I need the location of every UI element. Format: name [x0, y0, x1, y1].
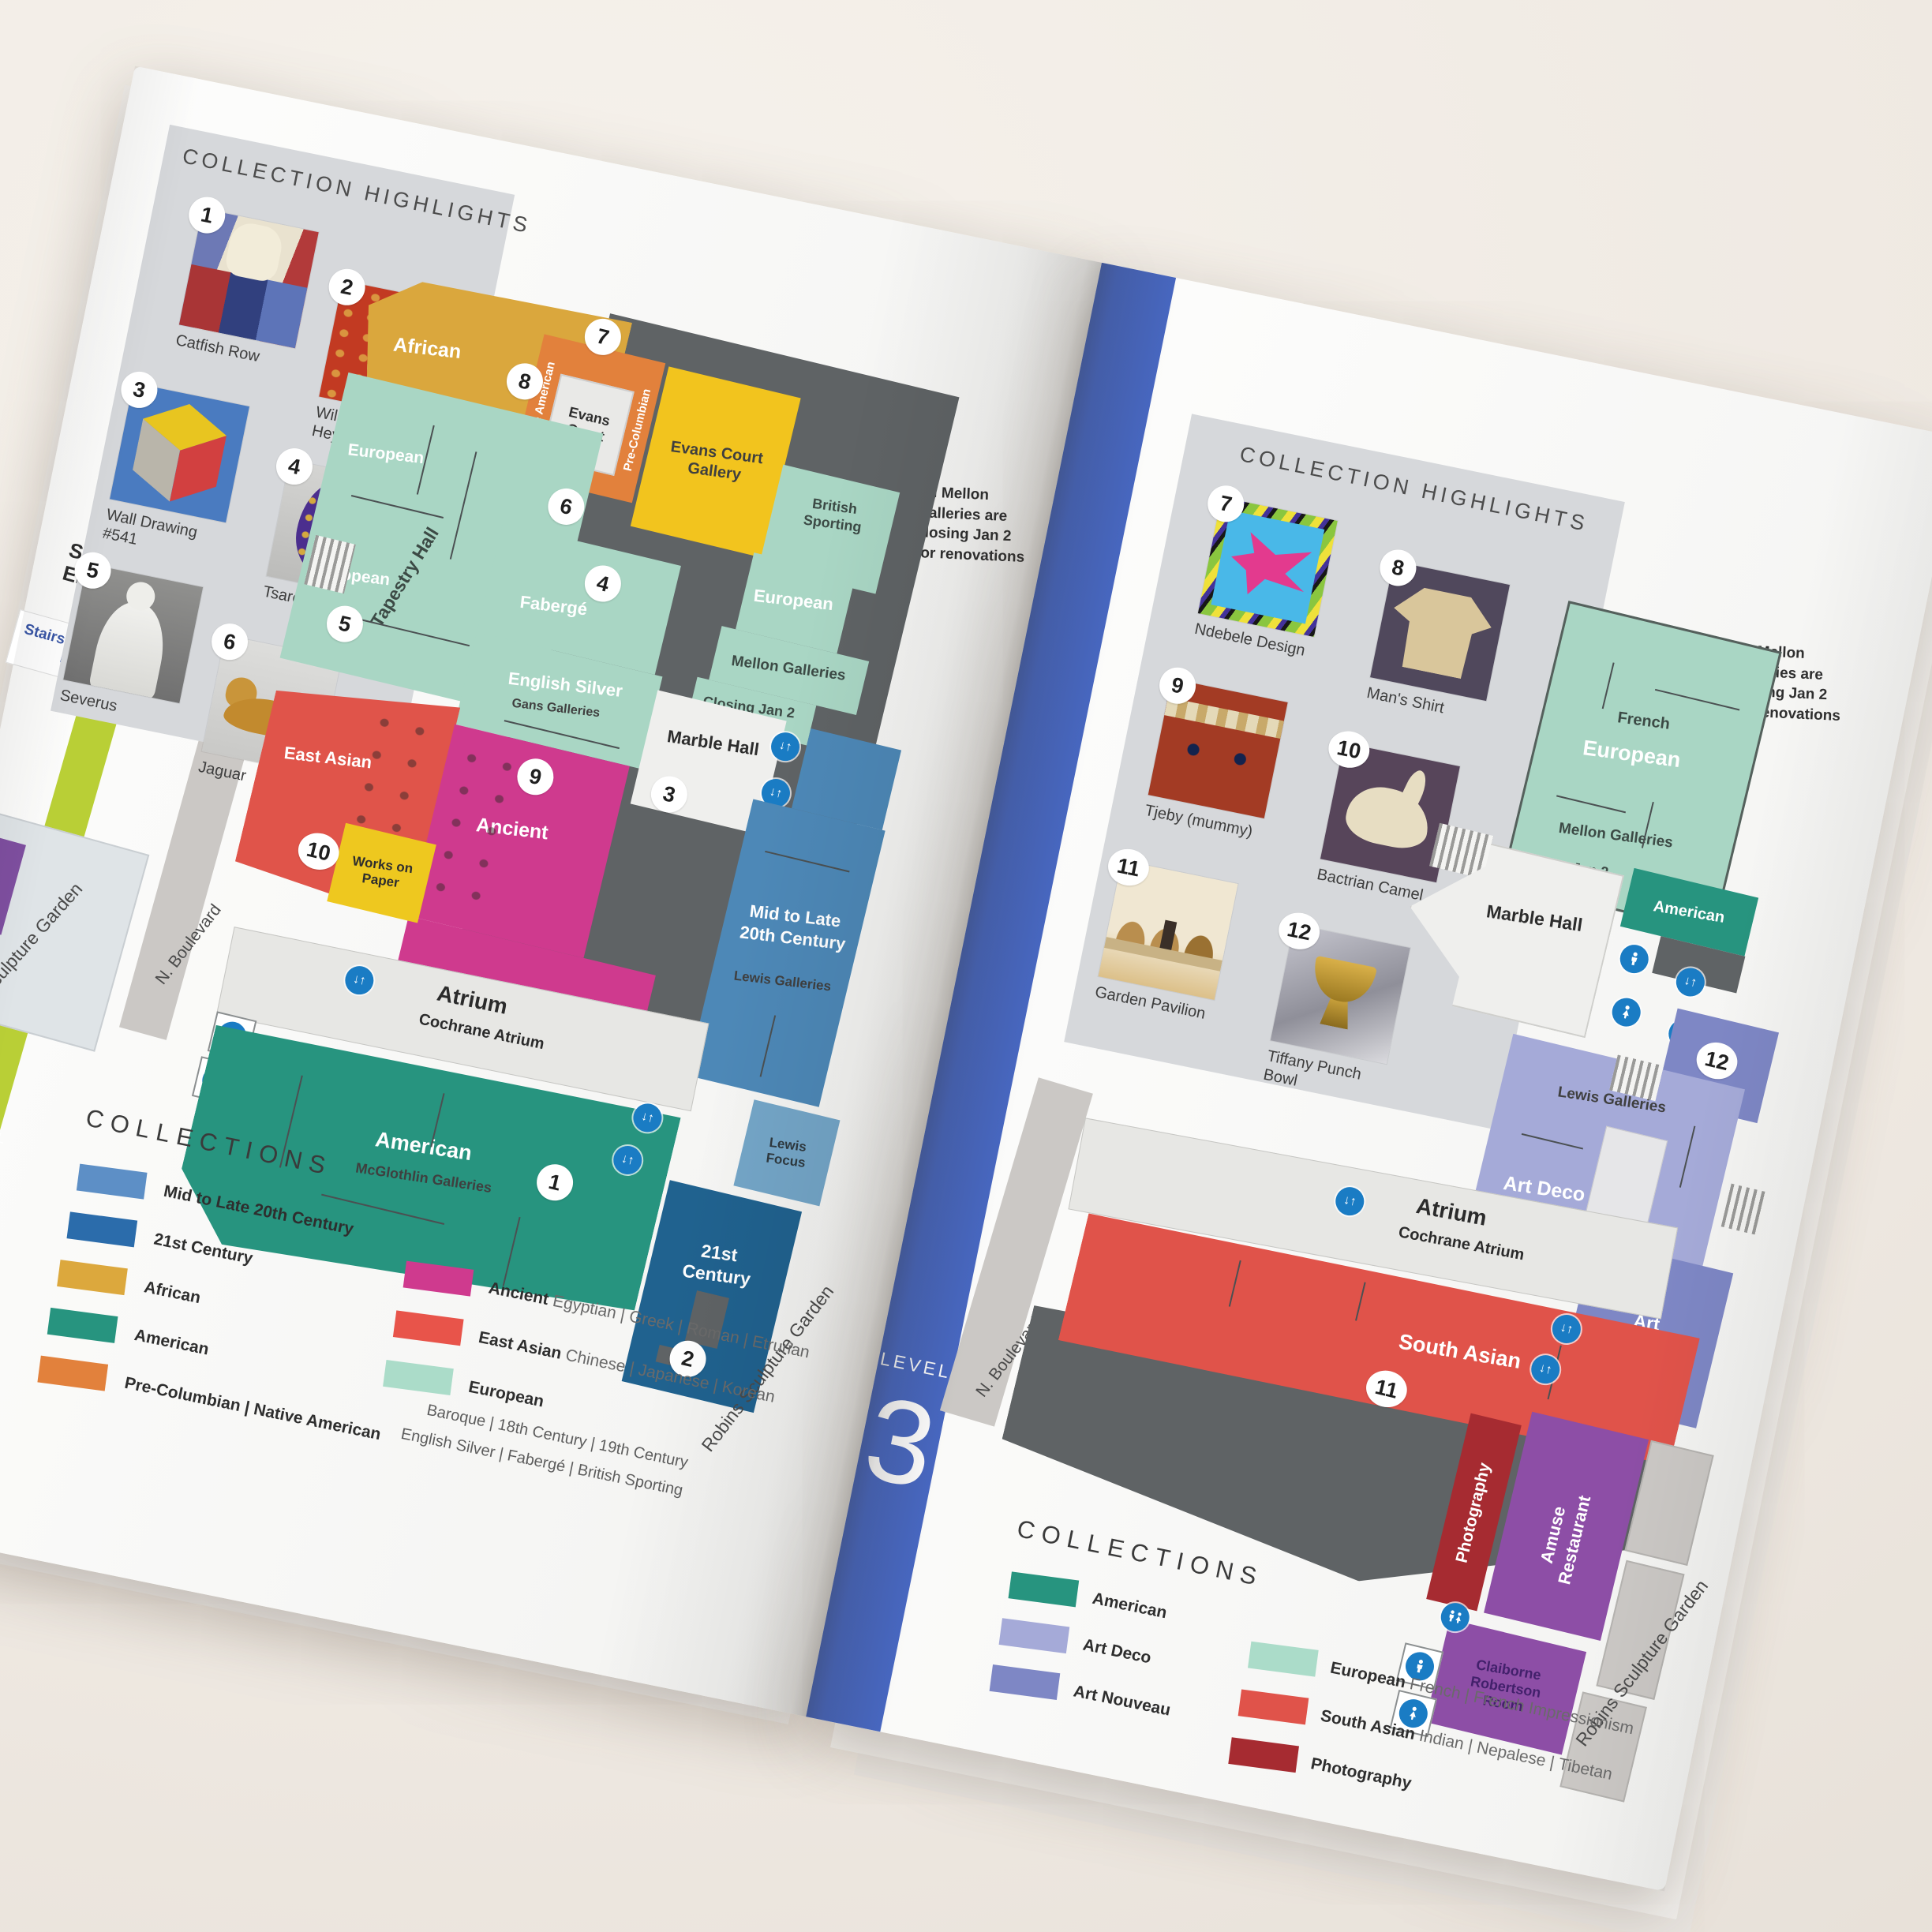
legend-row-photography: Photography: [1309, 1754, 1413, 1793]
room-label-atrium: Atrium: [435, 981, 510, 1020]
photo-scene: LEVEL 2 Sculpture Garden Entrance ◀ Stai…: [0, 0, 1932, 1932]
highlight-thumb-5: 5 Severus: [58, 563, 211, 729]
room-label-european: European: [1582, 736, 1683, 773]
room-label-american: American: [1653, 897, 1727, 927]
legend-label: American: [133, 1326, 211, 1360]
legend-swatch: [990, 1664, 1061, 1700]
stairs-hatch: [1721, 1184, 1767, 1235]
legend-swatch: [999, 1618, 1070, 1653]
elevator-icon: ↓↑: [1333, 1185, 1366, 1218]
restroom-men-icon: [1617, 942, 1651, 975]
room-label-evans-court-gallery: Evans Court Gallery: [662, 436, 769, 488]
room-label-mellon: Mellon Galleries: [1558, 820, 1674, 852]
legend-swatch: [403, 1261, 474, 1297]
room-label-english-silver: English Silver: [507, 668, 624, 702]
legend-label: 21st Century: [152, 1230, 254, 1269]
room-label-gans-galleries: Gans Galleries: [511, 697, 601, 721]
room-lewis-focus: Lewis Focus: [733, 1099, 840, 1206]
room-label-cochrane: Cochrane Atrium: [417, 1010, 546, 1054]
room-label-british-sporting: British Sporting: [788, 492, 879, 537]
room-label-marble-hall: Marble Hall: [1482, 900, 1587, 938]
room-label-european-2: European: [346, 440, 425, 468]
legend-label: Mid to Late 20th Century: [162, 1182, 355, 1239]
legend-swatch: [1009, 1571, 1080, 1607]
legend-label: American: [1091, 1589, 1169, 1623]
legend-swatch: [37, 1356, 108, 1391]
legend-swatch: [1238, 1689, 1309, 1724]
room-label-lewis-galleries: Lewis Galleries: [733, 968, 832, 995]
room-label-mid-late: Mid to Late 20th Century: [736, 899, 851, 954]
room-label-french: French: [1616, 709, 1671, 734]
room-label-mellon: Mellon Galleries: [730, 653, 846, 685]
highlight-thumb-1: 1 Catfish Row: [174, 208, 327, 374]
room-label-atrium: Atrium: [1414, 1193, 1489, 1231]
room-label-works-on-paper: Works on Paper: [343, 852, 420, 893]
legend-swatch: [1228, 1737, 1299, 1773]
legend-label: Art Deco: [1081, 1636, 1153, 1668]
room-label-marble-hall: Marble Hall: [665, 726, 762, 761]
legend-label: Pre-Columbian | Native American: [123, 1374, 383, 1444]
room-label-faberge: Fabergé: [519, 592, 588, 620]
room-label-south-asian: South Asian: [1397, 1330, 1522, 1374]
room-label-lewis-focus: Lewis Focus: [754, 1133, 821, 1173]
legend-swatch: [66, 1211, 137, 1247]
room-label-cochrane: Cochrane Atrium: [1397, 1223, 1526, 1264]
highlight-thumb-3: 3 Wall Drawing #541: [101, 383, 257, 567]
legend-label: African: [142, 1278, 202, 1308]
room-label-african: African: [392, 334, 462, 365]
room-label-american: American: [374, 1127, 474, 1166]
elevator-icon: ↓↑: [343, 964, 376, 997]
legend-swatch: [383, 1360, 454, 1395]
room-label-european: European: [753, 586, 835, 615]
legend-swatch: [57, 1260, 128, 1295]
legend-row-european: European: [466, 1378, 545, 1412]
legend-swatch: [47, 1308, 118, 1343]
legend-swatch: [1248, 1642, 1319, 1677]
room-label-amuse: AmuseRestaurant: [1522, 1448, 1605, 1627]
brochure-spread: LEVEL 2 Sculpture Garden Entrance ◀ Stai…: [0, 66, 1932, 1892]
legend-swatch: [77, 1164, 148, 1200]
restroom-women-icon: [1609, 995, 1643, 1029]
legend-swatch: [393, 1310, 464, 1346]
legend-label: Art Nouveau: [1072, 1682, 1172, 1720]
